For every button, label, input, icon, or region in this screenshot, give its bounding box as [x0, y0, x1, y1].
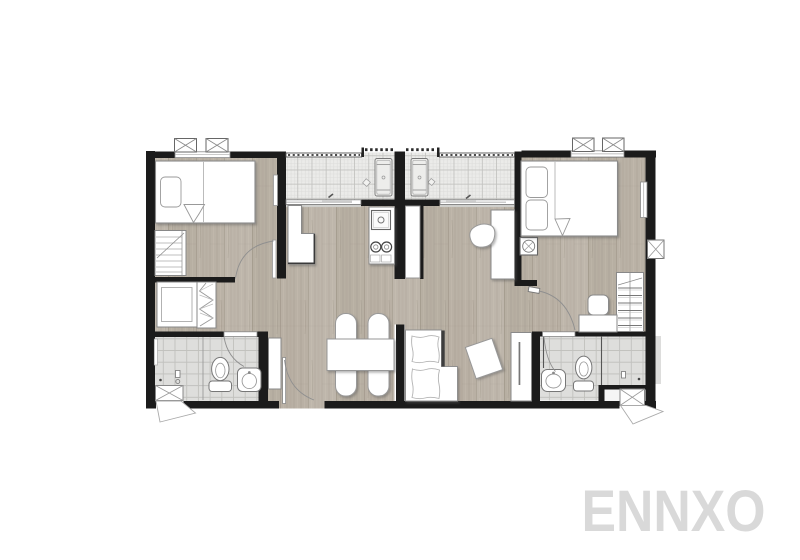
svg-text:ENNXO: ENNXO — [582, 479, 766, 544]
